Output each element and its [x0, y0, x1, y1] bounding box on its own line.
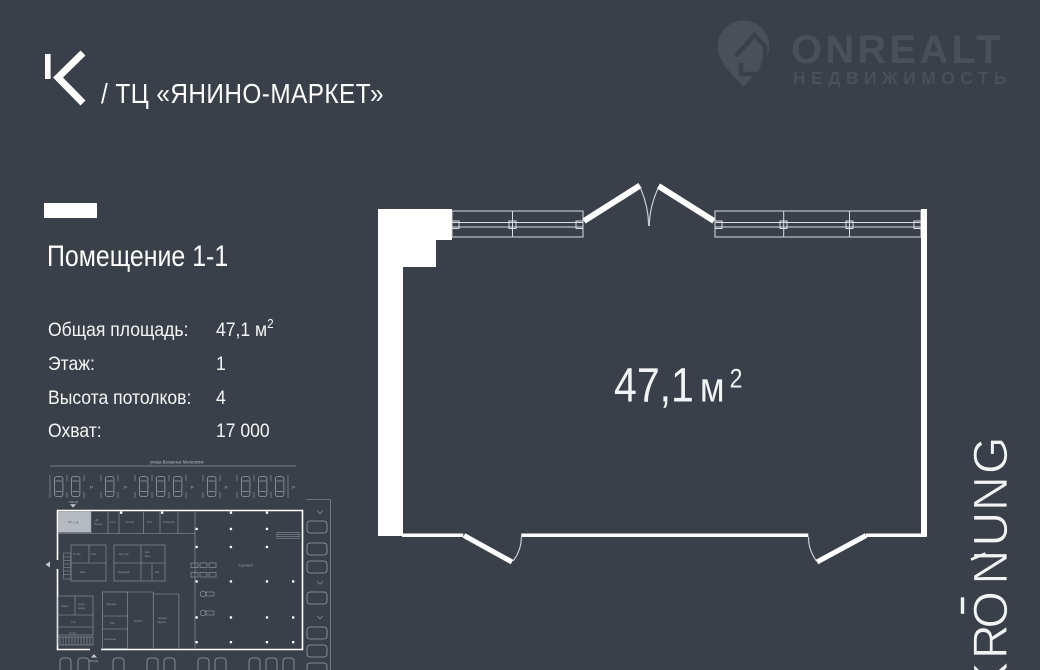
svg-text:Бар: Бар [155, 571, 160, 574]
svg-text:Мойдодыр: Мойдодыр [118, 571, 130, 574]
svg-text:P: P [191, 485, 194, 491]
svg-text:47,1 м: 47,1 м [68, 521, 79, 525]
svg-text:ВХОД: ВХОД [70, 500, 79, 504]
svg-text:Сдается: Сдается [157, 621, 167, 624]
svg-text:Холод: Холод [69, 632, 77, 635]
svg-text:1С бар: 1С бар [73, 553, 81, 556]
svg-text:R: R [965, 624, 1018, 659]
svg-text:25 м: 25 м [147, 521, 152, 524]
svg-text:G: G [965, 437, 1018, 474]
svg-text:РесПол: РесПол [134, 620, 143, 623]
svg-text:Дом: Дом [145, 551, 150, 554]
svg-text:Охр: Охр [71, 621, 76, 624]
svg-text:Быта: Быта [145, 555, 151, 558]
svg-text:Банк: Банк [80, 571, 86, 574]
svg-text:K: K [965, 662, 1018, 670]
svg-text:Опти: Опти [110, 521, 116, 524]
svg-text:Чик-Чик: Чик-Чик [125, 521, 135, 524]
svg-text:47,1м2: 47,1м2 [614, 360, 742, 413]
svg-text:улица Ветреных Мегаполис: улица Ветреных Мегаполис [150, 460, 204, 465]
svg-text:O: O [965, 591, 1018, 628]
svg-text:Прачечная: Прачечная [104, 638, 117, 641]
svg-text:Приемка: Приемка [106, 603, 116, 606]
svg-text:25м: 25м [110, 622, 115, 625]
svg-text:P: P [90, 485, 93, 491]
svg-text:ONREALT: ONREALT [791, 28, 1004, 72]
svg-text:Кухня: Кухня [78, 603, 85, 606]
svg-text:N: N [965, 476, 1018, 511]
svg-text:Связ: Связ [91, 553, 96, 556]
svg-text:ЦВ: ЦВ [95, 519, 99, 522]
svg-text:P: P [124, 485, 127, 491]
svg-text:Мар-тинг: Мар-тинг [119, 553, 129, 556]
svg-text:Торговый: Торговый [238, 564, 253, 568]
svg-text:N: N [965, 550, 1018, 585]
svg-text:НЕДВИЖИМОСТЬ: НЕДВИЖИМОСТЬ [793, 68, 1012, 88]
svg-text:P: P [292, 485, 295, 491]
svg-text:ВХОД: ВХОД [90, 659, 99, 663]
svg-text:Мороз: Мороз [61, 605, 68, 608]
svg-text:Аренда: Аренда [158, 617, 167, 620]
svg-text:P: P [225, 485, 228, 491]
svg-text:U: U [965, 512, 1018, 547]
svg-text:армян: армян [78, 607, 86, 610]
svg-text:Косметика: Косметика [163, 521, 175, 524]
svg-text:Пышка: Пышка [94, 523, 102, 526]
